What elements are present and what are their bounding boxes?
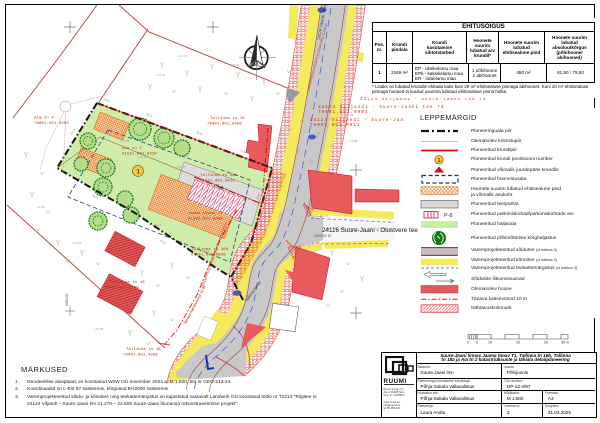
svg-text:P-8: P-8 [444,213,453,219]
svg-text:10: 10 [488,341,492,345]
svg-text:+73.86: +73.86 [94,327,104,331]
svg-text:76001.001.0250: 76001.001.0250 [34,122,69,126]
svg-text:+74.75: +74.75 [178,54,188,58]
svg-text:+74.22: +74.22 [156,73,166,77]
svg-text:0: 0 [467,341,469,345]
svg-text:76001.001.0011: 76001.001.0011 [310,124,361,128]
svg-text:Tallinna tn 16: Tallinna tn 16 [126,347,161,352]
svg-text:76001.001.0280: 76001.001.0280 [123,354,158,358]
svg-text:+74.11: +74.11 [176,165,185,169]
svg-text:Jaama tänav T1: Jaama tänav T1 [188,211,223,216]
svg-text:Tallinna tn 16b: Tallinna tn 16b [191,247,229,252]
svg-text:N: N [253,63,258,69]
svg-text:76001.001.0450: 76001.001.0450 [207,123,242,127]
svg-text:Tallinna tn 16a: Tallinna tn 16a [200,173,238,178]
svg-text:76001.001.0280: 76001.001.0280 [104,287,139,291]
svg-text:Aia tn 4: Aia tn 4 [34,116,54,121]
svg-text:76001.001.0001: 76001.001.0001 [318,111,369,115]
svg-text:61501.001.0005: 61501.001.0005 [188,218,223,222]
svg-text:+74.65: +74.65 [120,139,130,143]
svg-text:Tallinna tn 18: Tallinna tn 18 [210,116,245,121]
svg-text:+74.14: +74.14 [152,223,162,227]
svg-text:+74.40: +74.40 [72,241,82,245]
svg-text:+73.88: +73.88 [348,139,358,143]
svg-text:-73.98: -73.98 [36,205,45,209]
svg-text:20: 20 [516,341,520,345]
svg-text:Tallinna tn 16: Tallinna tn 16 [110,280,145,285]
svg-text:61501.001.0016: 61501.001.0016 [191,254,226,258]
svg-text:30: 30 [544,341,548,345]
svg-text:6485400: 6485400 [65,293,69,306]
svg-text:+74.07: +74.07 [230,63,240,67]
svg-text:35 m: 35 m [561,341,569,345]
svg-text:1: 1 [438,158,441,164]
svg-text:61501.001.0220: 61501.001.0220 [122,153,157,157]
svg-text:Aia tn 2: Aia tn 2 [122,146,142,151]
svg-text:5: 5 [476,341,478,345]
